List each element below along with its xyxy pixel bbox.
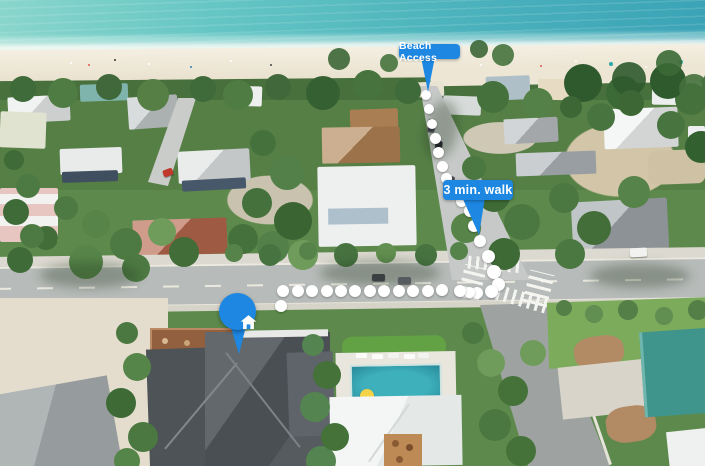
tree-canopy — [560, 96, 582, 118]
route-dot — [349, 285, 361, 297]
car — [372, 274, 385, 281]
palm-trees — [116, 322, 138, 344]
route-dot — [292, 285, 304, 297]
route-dot — [474, 235, 486, 247]
route-dot — [275, 300, 287, 312]
route-dot — [437, 161, 448, 172]
house-roof — [0, 111, 47, 149]
house-roof — [322, 126, 401, 163]
route-dot — [277, 285, 289, 297]
tree-canopy — [470, 40, 488, 58]
route-dot — [424, 104, 434, 114]
palm-trees — [462, 322, 484, 344]
car — [398, 277, 411, 284]
tree-canopy — [10, 76, 36, 102]
route-dot — [436, 284, 448, 296]
house-roof — [503, 117, 558, 145]
wood-deck — [384, 434, 422, 466]
route-dot — [482, 250, 495, 263]
house-roof — [0, 188, 58, 242]
teal-roof-building — [639, 328, 705, 418]
route-dot — [306, 285, 318, 297]
palm-trees — [225, 244, 243, 262]
palm-trees — [556, 300, 572, 316]
palm-trees — [54, 196, 78, 220]
house-wall — [62, 170, 118, 183]
beach-access-label: Beach Access — [399, 40, 460, 64]
route-dot — [421, 90, 431, 100]
route-dot — [321, 285, 333, 297]
house-roof — [652, 81, 702, 106]
tree-canopy — [250, 130, 276, 156]
tree-shadow — [590, 264, 690, 288]
house-roof — [666, 428, 705, 466]
house-roof — [317, 165, 416, 247]
pool-loungers — [356, 353, 367, 358]
route-dot — [364, 285, 376, 297]
palm-trees — [302, 334, 324, 356]
route-dot — [454, 285, 466, 297]
walk-time-badge[interactable]: 3 min. walk — [443, 180, 513, 200]
route-dot — [335, 285, 347, 297]
featured-house-roof — [287, 351, 336, 437]
route-dot — [393, 285, 405, 297]
beach-access-badge[interactable]: Beach Access — [399, 44, 460, 59]
palm-trees — [4, 150, 24, 170]
van — [630, 248, 647, 258]
route-dot — [430, 133, 441, 144]
aerial-photo: Beach Access 3 min. walk — [0, 0, 705, 466]
dirt-patch — [647, 149, 705, 185]
beachgoers — [70, 62, 72, 64]
house-roof — [688, 126, 705, 152]
house-roof — [132, 217, 227, 256]
house-roof — [603, 107, 678, 150]
tree-shadow — [40, 262, 140, 288]
house-roof — [80, 83, 129, 102]
house-roof — [228, 85, 263, 106]
walk-time-label: 3 min. walk — [444, 183, 513, 197]
route-dot — [485, 285, 498, 298]
route-dot — [407, 285, 419, 297]
route-dot — [427, 119, 437, 129]
house-roof — [571, 198, 669, 253]
route-dot — [487, 265, 501, 279]
house-roof — [486, 75, 531, 101]
route-dot — [422, 285, 434, 297]
home-marker[interactable] — [219, 293, 256, 330]
route-dot — [433, 147, 444, 158]
route-dot — [378, 285, 390, 297]
tree-canopy — [462, 156, 486, 180]
house-roof — [516, 151, 597, 177]
tree-shadow — [320, 260, 440, 286]
